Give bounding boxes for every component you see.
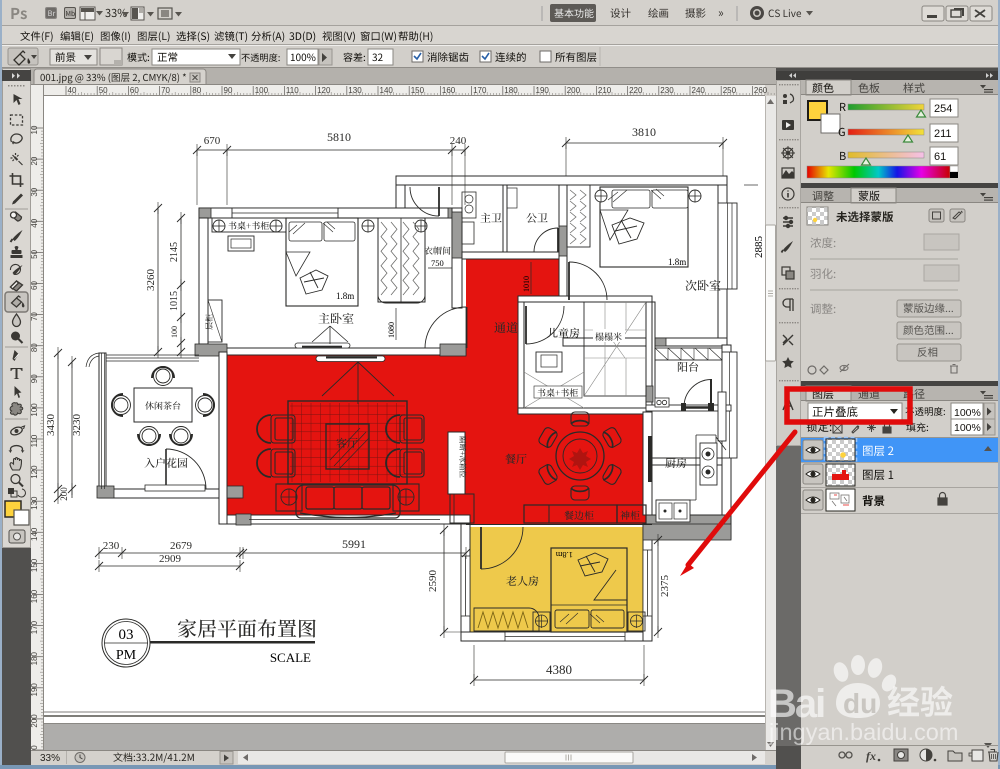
svg-text:50: 50 <box>99 86 108 95</box>
svg-text:40: 40 <box>30 218 39 227</box>
svg-text:33%: 33% <box>40 753 60 764</box>
svg-text:3260: 3260 <box>145 269 157 292</box>
svg-text:200: 200 <box>59 487 69 501</box>
svg-text:190: 190 <box>30 683 39 697</box>
svg-text:100: 100 <box>30 403 39 417</box>
svg-text:4380: 4380 <box>546 662 572 677</box>
svg-text:80: 80 <box>192 86 201 95</box>
svg-text:220: 220 <box>629 86 643 95</box>
svg-text:130: 130 <box>30 496 39 510</box>
svg-text:3810: 3810 <box>632 125 656 139</box>
svg-text:210: 210 <box>598 86 612 95</box>
svg-text:5810: 5810 <box>327 130 351 144</box>
svg-text:200: 200 <box>567 86 581 95</box>
svg-text:1080: 1080 <box>387 322 396 338</box>
svg-text:240: 240 <box>692 86 706 95</box>
svg-text:230: 230 <box>660 86 674 95</box>
svg-text:170: 170 <box>473 86 487 95</box>
svg-text:1.8m: 1.8m <box>336 291 354 301</box>
svg-text:2885: 2885 <box>753 236 765 259</box>
svg-text:190: 190 <box>536 86 550 95</box>
svg-text:200: 200 <box>30 714 39 728</box>
svg-text:100%: 100% <box>954 407 981 419</box>
svg-text:110: 110 <box>286 86 299 95</box>
svg-text:3430: 3430 <box>45 414 57 437</box>
svg-text:140: 140 <box>380 86 394 95</box>
svg-text:jingyan.baidu.com: jingyan.baidu.com <box>768 719 958 745</box>
svg-text:PM: PM <box>116 648 137 663</box>
svg-text:2145: 2145 <box>169 242 180 262</box>
svg-text:254: 254 <box>934 103 952 115</box>
svg-text:150: 150 <box>411 86 425 95</box>
svg-text:70: 70 <box>161 86 170 95</box>
svg-text:100: 100 <box>255 86 269 95</box>
svg-text:du: du <box>843 688 877 719</box>
svg-text:160: 160 <box>30 589 39 603</box>
svg-text:670: 670 <box>204 135 221 147</box>
svg-text:SCALE: SCALE <box>270 650 311 665</box>
svg-text:50: 50 <box>30 249 39 258</box>
svg-text:2679: 2679 <box>170 540 193 552</box>
svg-text:120: 120 <box>30 465 39 479</box>
svg-text:180: 180 <box>504 86 518 95</box>
svg-text:211: 211 <box>934 128 952 140</box>
svg-text:1.8m: 1.8m <box>668 257 686 267</box>
svg-text:240: 240 <box>450 135 467 147</box>
svg-text:5991: 5991 <box>342 537 366 551</box>
svg-text:160: 160 <box>442 86 456 95</box>
svg-text:1010: 1010 <box>522 276 531 292</box>
svg-text:61: 61 <box>934 151 946 163</box>
svg-text:90: 90 <box>30 374 39 383</box>
svg-text:60: 60 <box>130 86 139 95</box>
svg-text:110: 110 <box>30 434 39 447</box>
svg-text:60: 60 <box>30 281 39 290</box>
svg-text:150: 150 <box>30 558 39 572</box>
svg-text:03: 03 <box>119 627 134 643</box>
svg-text:140: 140 <box>30 527 39 541</box>
svg-text:100%: 100% <box>954 422 981 434</box>
svg-text:120: 120 <box>317 86 331 95</box>
svg-text:250: 250 <box>723 86 737 95</box>
svg-text:30: 30 <box>30 187 39 196</box>
svg-text:100: 100 <box>170 326 179 338</box>
svg-text:170: 170 <box>30 620 39 634</box>
svg-text:2590: 2590 <box>427 570 439 593</box>
svg-text:2909: 2909 <box>159 553 182 565</box>
svg-text:80: 80 <box>30 343 39 352</box>
svg-text:10: 10 <box>30 125 39 134</box>
svg-text:90: 90 <box>224 86 233 95</box>
svg-text:750: 750 <box>431 258 444 268</box>
svg-text:3230: 3230 <box>71 414 83 437</box>
svg-text:260: 260 <box>754 86 768 95</box>
svg-text:fx: fx <box>866 749 876 763</box>
svg-text:2375: 2375 <box>659 575 671 598</box>
svg-text:1.8m: 1.8m <box>555 550 573 560</box>
svg-text:40: 40 <box>68 86 77 95</box>
svg-text:20: 20 <box>30 156 39 165</box>
svg-text:180: 180 <box>30 651 39 665</box>
svg-text:1015: 1015 <box>169 291 180 311</box>
svg-text:230: 230 <box>103 540 120 552</box>
svg-text:70: 70 <box>30 312 39 321</box>
svg-text:130: 130 <box>348 86 362 95</box>
